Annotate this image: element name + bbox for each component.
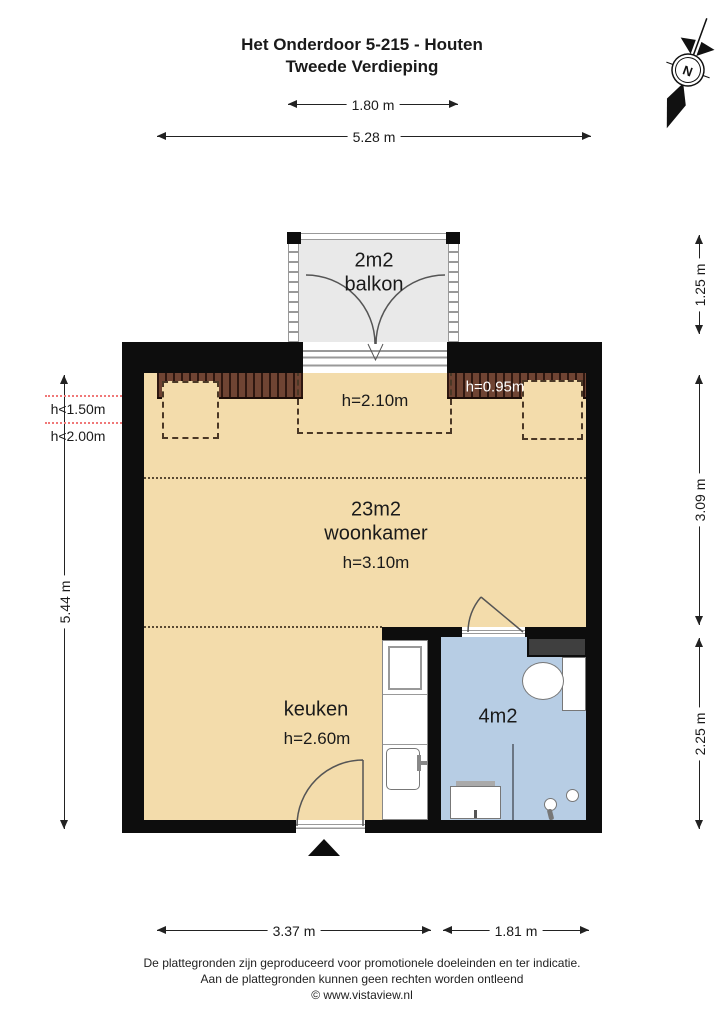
knee-wall-height-label: h=0.95m — [466, 379, 525, 396]
balcony-name-label: balkon — [345, 274, 404, 297]
kitchen-height-label: h=2.60m — [284, 729, 351, 749]
balcony-area-label: 2m2 — [355, 250, 394, 273]
living-height-label: h=3.10m — [343, 553, 410, 573]
living-name-label: woonkamer — [324, 523, 427, 546]
compass-wing-left — [677, 35, 696, 54]
footer-disclaimer-1: De plattegronden zijn geproduceerd voor … — [0, 956, 724, 970]
french-door-meeting-mark — [368, 344, 383, 360]
kitchen-name-label: keuken — [284, 699, 349, 722]
footer-credit: © www.vistaview.nl — [0, 988, 724, 1002]
living-area-label: 23m2 — [351, 499, 401, 522]
entrance-door-swing — [297, 760, 363, 826]
compass-icon: N — [645, 10, 724, 136]
compass-south-tail — [657, 80, 692, 132]
floorplan-page: Het Onderdoor 5-215 - Houten Tweede Verd… — [0, 0, 724, 1024]
dormer-height-label: h=2.10m — [342, 391, 409, 411]
bathroom-area-label: 4m2 — [479, 706, 518, 729]
bathroom-door-swing — [468, 597, 523, 632]
footer-disclaimer-2: Aan de plattegronden kunnen geen rechten… — [0, 972, 724, 986]
